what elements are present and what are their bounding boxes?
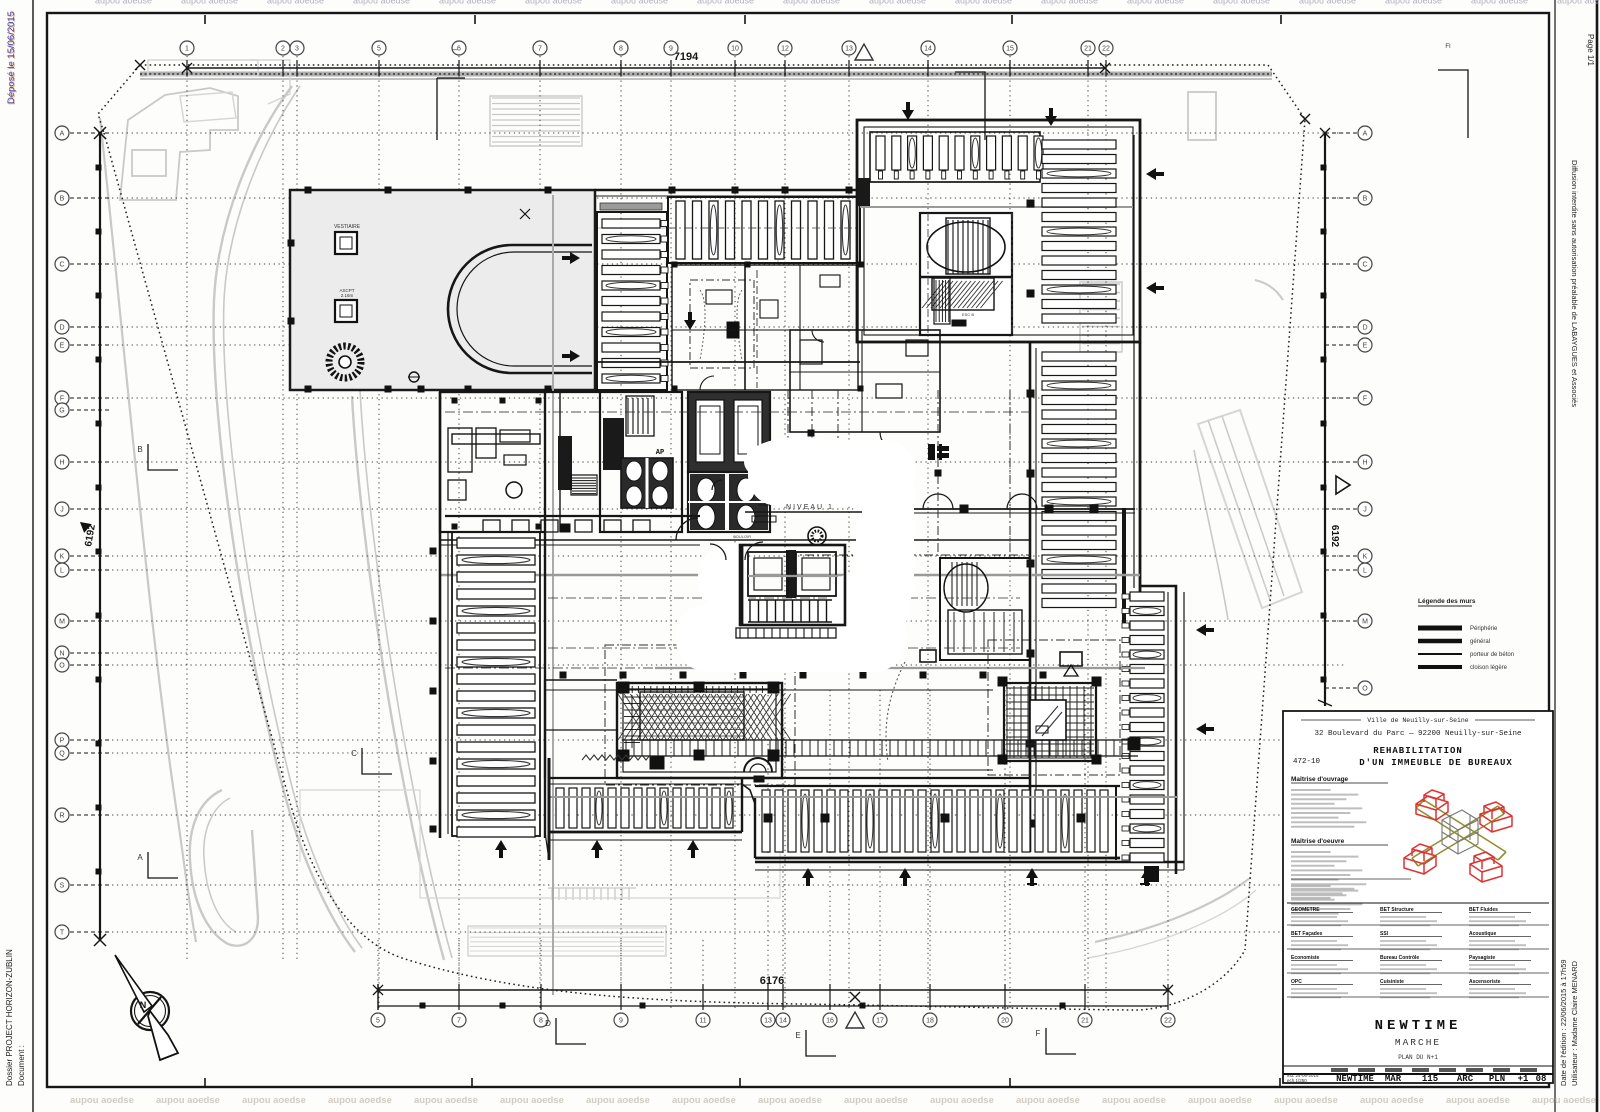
svg-text:aupou aoedse: aupou aoedse (439, 0, 496, 6)
svg-text:Cuisiniste: Cuisiniste (1380, 979, 1404, 985)
svg-text:MARCHE: MARCHE (1395, 1037, 1441, 1048)
svg-text:472-10: 472-10 (1293, 758, 1321, 766)
svg-text:D: D (545, 1019, 551, 1028)
svg-text:cloison légère: cloison légère (1470, 665, 1508, 671)
svg-text:21: 21 (1084, 46, 1092, 53)
svg-text:aupou aoedse: aupou aoedse (1016, 1095, 1080, 1106)
svg-text:Q: Q (59, 751, 65, 758)
svg-text:Périphérie: Périphérie (1470, 626, 1498, 632)
svg-text:9: 9 (669, 46, 673, 53)
svg-text:115: 115 (1422, 1074, 1438, 1084)
svg-text:aupou aoedse: aupou aoedse (1471, 0, 1528, 6)
svg-text:G: G (59, 408, 64, 415)
svg-text:18: 18 (926, 1018, 934, 1025)
svg-text:2: 2 (281, 46, 285, 53)
svg-text:Ascensoriste: Ascensoriste (1469, 979, 1501, 985)
svg-text:D'UN IMMEUBLE DE BUREAUX: D'UN IMMEUBLE DE BUREAUX (1359, 758, 1513, 768)
svg-text:GEOMETRE: GEOMETRE (1291, 907, 1320, 913)
svg-text:O: O (59, 663, 65, 670)
svg-text:ESC B: ESC B (962, 312, 974, 317)
svg-text:Bureau Contrôle: Bureau Contrôle (1380, 955, 1419, 961)
svg-text:L: L (1363, 568, 1367, 575)
svg-text:K: K (60, 554, 65, 561)
svg-text:7194: 7194 (674, 51, 699, 63)
svg-text:aupou aoedse: aupou aoedse (1274, 1095, 1338, 1106)
svg-text:MAR: MAR (1385, 1074, 1402, 1084)
svg-text:Dossier PROJECT HORIZON-ZUBLIN: Dossier PROJECT HORIZON-ZUBLIN (5, 949, 14, 1086)
svg-text:6176: 6176 (760, 975, 784, 987)
svg-text:S: S (60, 883, 65, 890)
svg-text:aupou aoedse: aupou aoedse (1213, 0, 1270, 6)
svg-text:NEWTIME: NEWTIME (1336, 1074, 1374, 1084)
svg-text:Utilisateur : Madame Claire ME: Utilisateur : Madame Claire MENARD (1570, 960, 1579, 1086)
svg-text:L: L (60, 568, 64, 575)
svg-text:A: A (137, 853, 143, 862)
svg-text:aupou aoedse: aupou aoedse (1188, 1095, 1252, 1106)
svg-text:aupou aoedse: aupou aoedse (697, 0, 754, 6)
svg-text:T: T (60, 930, 65, 937)
svg-text:FI: FI (1445, 44, 1451, 50)
svg-text:6192: 6192 (1329, 525, 1340, 548)
svg-text:aupou aoedse: aupou aoedse (525, 0, 582, 6)
svg-text:B: B (60, 196, 65, 203)
svg-text:aupou aoedse: aupou aoedse (672, 1095, 736, 1106)
svg-text:aupou aoedse: aupou aoedse (1532, 1095, 1596, 1106)
svg-text:A: A (60, 131, 65, 138)
svg-text:porteur de béton: porteur de béton (1470, 652, 1514, 658)
svg-text:COULOIR: COULOIR (733, 534, 751, 539)
svg-text:Page 1/1: Page 1/1 (1586, 34, 1595, 67)
svg-text:aupou aoedse: aupou aoedse (930, 1095, 994, 1106)
svg-text:C: C (351, 749, 357, 758)
svg-text:Document :: Document : (17, 1045, 26, 1086)
svg-text:3: 3 (295, 46, 299, 53)
svg-text:7: 7 (457, 1018, 461, 1025)
svg-text:32 Boulevard du Parc — 92200 N: 32 Boulevard du Parc — 92200 Neuilly-sur… (1314, 730, 1521, 738)
svg-text:OPC: OPC (1291, 979, 1302, 985)
svg-text:aupou aoedse: aupou aoedse (783, 0, 840, 6)
svg-text:aupou aoedse: aupou aoedse (1127, 0, 1184, 6)
svg-text:aupou aoedse: aupou aoedse (1446, 1095, 1510, 1106)
svg-text:aupou aoedse: aupou aoedse (181, 0, 238, 6)
svg-text:Maîtrise d'oeuvre: Maîtrise d'oeuvre (1291, 838, 1345, 845)
svg-text:Maîtrise d'ouvrage: Maîtrise d'ouvrage (1291, 776, 1349, 783)
svg-text:F: F (1363, 396, 1367, 403)
svg-text:–: – (452, 44, 457, 54)
svg-text:M: M (59, 619, 65, 626)
svg-text:Acoustique: Acoustique (1469, 931, 1496, 937)
svg-text:D: D (1362, 325, 1367, 332)
svg-text:2.16m: 2.16m (341, 293, 354, 298)
svg-text:PLN: PLN (1489, 1074, 1505, 1084)
svg-text:Date de l'édition : 22/06/2015: Date de l'édition : 22/06/2015 à 17h59 (1559, 959, 1568, 1086)
svg-text:D: D (59, 325, 64, 332)
svg-text:17: 17 (876, 1018, 884, 1025)
svg-text:aupou aoedse: aupou aoedse (500, 1095, 564, 1106)
svg-text:E: E (60, 343, 65, 350)
svg-text:Diffusion interdite sans autor: Diffusion interdite sans autorisation pr… (1570, 160, 1579, 407)
svg-text:14: 14 (779, 1018, 787, 1025)
svg-text:B: B (137, 445, 142, 454)
svg-text:AP: AP (656, 449, 664, 457)
svg-text:aupou aoedse: aupou aoedse (328, 1095, 392, 1106)
svg-text:6: 6 (457, 46, 461, 53)
svg-text:8: 8 (539, 1018, 543, 1025)
svg-text:5: 5 (377, 46, 381, 53)
svg-text:général: général (1470, 639, 1490, 645)
svg-text:Economiste: Economiste (1291, 955, 1320, 961)
svg-text:16: 16 (826, 1018, 834, 1025)
svg-text:N: N (140, 1000, 147, 1010)
svg-text:aupou aoedse: aupou aoedse (353, 0, 410, 6)
svg-text:R: R (59, 813, 64, 820)
svg-text:12: 12 (781, 46, 789, 53)
svg-text:10: 10 (731, 46, 739, 53)
svg-text:ARC: ARC (1457, 1074, 1474, 1084)
svg-text:15: 15 (1006, 46, 1014, 53)
svg-text:VESTIAIRE: VESTIAIRE (334, 224, 361, 230)
svg-text:13: 13 (764, 1018, 772, 1025)
svg-text:aupou aoedse: aupou aoedse (242, 1095, 306, 1106)
svg-text:aupou aoedse: aupou aoedse (955, 0, 1012, 6)
svg-text:5: 5 (376, 1018, 380, 1025)
svg-text:E: E (795, 1031, 800, 1040)
svg-text:aupou aoedse: aupou aoedse (869, 0, 926, 6)
svg-text:C: C (59, 262, 64, 269)
svg-text:ech.1/250: ech.1/250 (1287, 1078, 1307, 1083)
svg-text:SSI: SSI (1380, 931, 1389, 937)
svg-text:+1: +1 (1518, 1074, 1529, 1084)
svg-text:1: 1 (185, 46, 189, 53)
svg-text:H: H (1362, 460, 1367, 467)
svg-text:C: C (1362, 262, 1367, 269)
svg-text:21: 21 (1081, 1018, 1089, 1025)
svg-text:H: H (59, 460, 64, 467)
svg-text:aupou aoedse: aupou aoedse (1041, 0, 1098, 6)
svg-text:Paysagiste: Paysagiste (1469, 955, 1495, 961)
svg-text:aupou aoedse: aupou aoedse (414, 1095, 478, 1106)
svg-text:20: 20 (1001, 1018, 1009, 1025)
svg-text:aupou aoedse: aupou aoedse (758, 1095, 822, 1106)
svg-text:F: F (60, 396, 64, 403)
svg-text:A: A (1363, 131, 1368, 138)
svg-text:08: 08 (1536, 1074, 1547, 1084)
svg-text:aupou aoedse: aupou aoedse (1360, 1095, 1424, 1106)
svg-text:E: E (1363, 343, 1368, 350)
svg-text:P: P (60, 738, 65, 745)
svg-text:aupou aoedse: aupou aoedse (1557, 0, 1600, 6)
svg-text:11: 11 (699, 1018, 706, 1025)
svg-text:Légende des murs: Légende des murs (1418, 598, 1476, 605)
svg-text:J: J (1363, 507, 1367, 514)
svg-text:aupou aoedse: aupou aoedse (1102, 1095, 1166, 1106)
svg-text:NIVEAU 1: NIVEAU 1 (786, 504, 834, 511)
svg-text:aupou aoedse: aupou aoedse (844, 1095, 908, 1106)
svg-text:aupou aoedse: aupou aoedse (70, 1095, 134, 1106)
svg-text:Déposé le 15/06/2015: Déposé le 15/06/2015 (7, 12, 18, 105)
svg-text:14: 14 (924, 46, 932, 53)
svg-text:aupou aoedse: aupou aoedse (267, 0, 324, 6)
svg-text:NEWTIME: NEWTIME (1375, 1018, 1462, 1034)
svg-text:aupou aoedse: aupou aoedse (156, 1095, 220, 1106)
svg-text:J: J (60, 507, 64, 514)
svg-text:B: B (1363, 196, 1368, 203)
svg-text:BET Façades: BET Façades (1291, 931, 1323, 937)
svg-text:aupou aoedse: aupou aoedse (1385, 0, 1442, 6)
svg-text:F: F (1036, 1029, 1041, 1038)
svg-text:O: O (1362, 686, 1368, 693)
svg-text:BET Structure: BET Structure (1380, 907, 1414, 913)
svg-text:aupou aoedse: aupou aoedse (586, 1095, 650, 1106)
svg-text:M: M (1362, 619, 1368, 626)
svg-text:PLAN DU N+1: PLAN DU N+1 (1398, 1054, 1438, 1061)
svg-text:REHABILITATION: REHABILITATION (1373, 746, 1463, 756)
svg-text:BET Fluides: BET Fluides (1469, 907, 1498, 913)
svg-text:aupou aoedse: aupou aoedse (611, 0, 668, 6)
svg-text:8: 8 (619, 46, 623, 53)
svg-text:N: N (59, 651, 64, 658)
svg-text:9: 9 (619, 1018, 623, 1025)
svg-text:7: 7 (538, 46, 542, 53)
svg-text:K: K (1363, 554, 1368, 561)
svg-text:13: 13 (845, 46, 853, 53)
svg-text:22: 22 (1102, 46, 1110, 53)
svg-text:22: 22 (1164, 1018, 1172, 1025)
svg-text:aupou aoedse: aupou aoedse (1299, 0, 1356, 6)
svg-text:aupou aoedse: aupou aoedse (95, 0, 152, 6)
svg-text:Ville de Neuilly-sur-Seine: Ville de Neuilly-sur-Seine (1367, 717, 1469, 724)
